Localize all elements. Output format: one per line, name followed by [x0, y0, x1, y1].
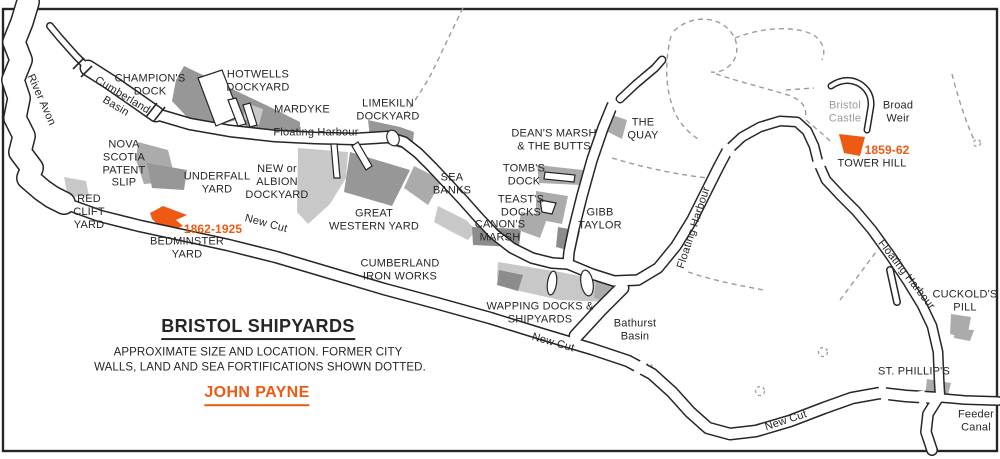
label-mardyke: MARDYKE [274, 104, 330, 117]
label-bedminster-yard: BEDMINSTER YARD [150, 235, 224, 261]
label-nova-scotia: NOVA SCOTIA PATENT SLIP [103, 139, 146, 190]
label-canons-marsh: CANON'S MARSH [475, 218, 526, 244]
label-feeder-canal: Feeder Canal [958, 408, 994, 434]
label-underfall-yard: UNDERFALL YARD [184, 170, 251, 196]
fortification-dashed-lines [407, 8, 981, 396]
map-caption-line2: WALLS, LAND AND SEA FORTIFICATIONS SHOWN… [94, 361, 426, 374]
label-tombs-dock: TOMB'S DOCK [503, 162, 545, 188]
map-author: JOHN PAYNE [204, 384, 309, 406]
label-red-clift-yard: RED CLIFT YARD [73, 193, 105, 231]
label-tower-hill: TOWER HILL [837, 158, 906, 171]
label-bathurst-basin: Bathurst Basin [614, 317, 657, 343]
label-great-western-yard: GREAT WESTERN YARD [329, 207, 419, 233]
label-cumberland-iron-works: CUMBERLAND IRON WORKS [360, 257, 439, 283]
great-western-yard-area [344, 152, 410, 206]
label-broad-weir: Broad Weir [883, 99, 913, 125]
label-sea-banks: SEA BANKS [433, 171, 471, 197]
label-wapping-docks: WAPPING DOCKS & SHIPYARDS [486, 300, 593, 326]
label-teasts-docks: TEAST'S DOCKS [498, 193, 544, 219]
label-cuckolds-pill: CUCKOLD'S PILL [932, 288, 997, 314]
st-phillips-area-2 [954, 329, 974, 341]
label-limekiln-dockyard: LIMEKILN DOCKYARD [356, 97, 419, 123]
label-new-albion-dockyard: NEW or ALBION DOCKYARD [245, 163, 308, 201]
map-title: BRISTOL SHIPYARDS [161, 316, 355, 340]
label-hotwells-dockyard: HOTWELLS DOCKYARD [226, 68, 289, 94]
label-st-phillips: ST. PHILLIP'S [878, 366, 950, 379]
tower-hill-area-orange [839, 134, 865, 156]
label-deans-marsh: DEAN'S MARSH & THE BUTTS [511, 127, 596, 153]
label-champions-dock: CHAMPION'S DOCK [115, 72, 186, 98]
underfall-yard-area [147, 163, 187, 190]
label-bristol-castle: Bristol Castle [829, 99, 861, 125]
bristol-shipyards-map: River Avon Cumberland Basin CHAMPION'S D… [0, 0, 1000, 459]
label-tower-hill-dates: 1859-62 [865, 144, 910, 158]
map-caption-line1: APPROXIMATE SIZE AND LOCATION. FORMER CI… [114, 346, 403, 359]
label-floating-harbour-west: Floating Harbour [273, 127, 358, 140]
label-gibb-taylor: GIBB TAYLOR [578, 206, 622, 232]
label-the-quay: THE QUAY [627, 116, 658, 142]
